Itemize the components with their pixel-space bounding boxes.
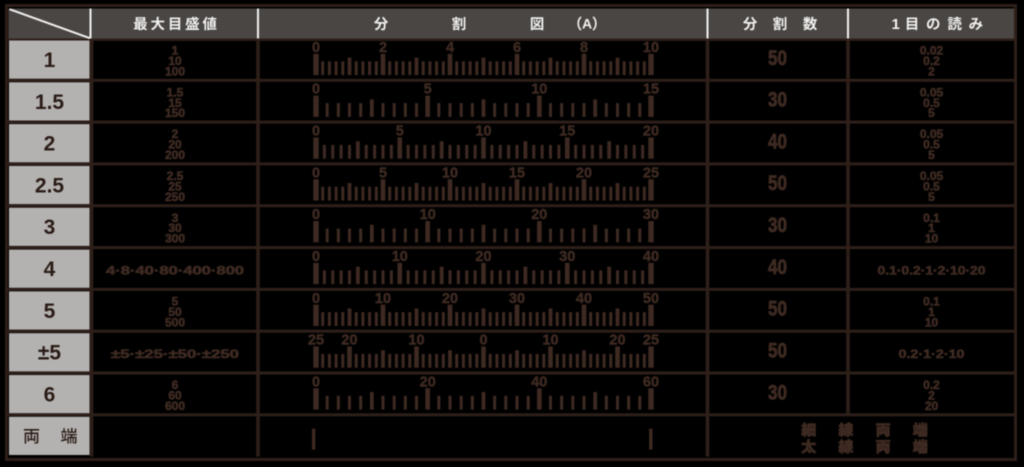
svg-text:20: 20: [341, 333, 357, 349]
svg-text:0.2·1·2·10: 0.2·1·2·10: [899, 347, 965, 361]
svg-text:1.5: 1.5: [35, 91, 65, 114]
svg-text:5: 5: [928, 106, 935, 120]
svg-text:10: 10: [392, 249, 408, 265]
svg-text:40: 40: [531, 374, 547, 390]
svg-text:0: 0: [312, 374, 320, 390]
svg-text:10: 10: [643, 40, 659, 56]
svg-text:30: 30: [768, 381, 787, 404]
svg-text:20: 20: [475, 249, 491, 265]
svg-text:50: 50: [768, 47, 787, 70]
svg-text:20: 20: [442, 291, 458, 307]
svg-text:±5: ±5: [38, 342, 62, 365]
svg-text:10: 10: [442, 165, 458, 181]
svg-text:150: 150: [165, 106, 185, 120]
svg-text:100: 100: [165, 64, 185, 78]
svg-text:0: 0: [312, 291, 320, 307]
svg-text:250: 250: [165, 190, 185, 204]
svg-text:20: 20: [643, 124, 659, 140]
svg-text:30: 30: [509, 291, 525, 307]
svg-text:2.5: 2.5: [35, 174, 65, 197]
svg-text:30: 30: [643, 207, 659, 223]
svg-text:0: 0: [312, 124, 320, 140]
svg-text:4: 4: [446, 40, 454, 56]
svg-text:4·8·40·80·400·800: 4·8·40·80·400·800: [106, 263, 244, 277]
svg-text:2: 2: [379, 40, 387, 56]
svg-text:10: 10: [420, 207, 436, 223]
svg-text:10: 10: [925, 315, 939, 329]
svg-text:15: 15: [509, 165, 525, 181]
svg-text:0.1·0.2·1·2·10·20: 0.1·0.2·1·2·10·20: [878, 263, 986, 277]
svg-text:0: 0: [312, 40, 320, 56]
svg-text:40: 40: [576, 291, 592, 307]
svg-text:15: 15: [643, 82, 659, 98]
svg-text:5: 5: [928, 190, 935, 204]
svg-text:5: 5: [379, 165, 387, 181]
svg-text:20: 20: [420, 374, 436, 390]
svg-text:40: 40: [643, 249, 659, 265]
svg-text:50: 50: [643, 291, 659, 307]
svg-text:10: 10: [375, 291, 391, 307]
svg-text:5: 5: [396, 124, 404, 140]
svg-text:500: 500: [165, 315, 185, 329]
svg-text:2: 2: [44, 133, 56, 156]
svg-text:6: 6: [513, 40, 521, 56]
svg-text:0: 0: [479, 333, 487, 349]
svg-text:30: 30: [559, 249, 575, 265]
svg-text:10: 10: [408, 333, 424, 349]
svg-text:20: 20: [609, 333, 625, 349]
svg-text:10: 10: [531, 82, 547, 98]
svg-text:5: 5: [928, 148, 935, 162]
svg-text:60: 60: [643, 374, 659, 390]
svg-text:3: 3: [44, 216, 56, 239]
svg-text:0: 0: [312, 207, 320, 223]
svg-text:25: 25: [643, 165, 659, 181]
svg-text:30: 30: [768, 214, 787, 237]
svg-text:5: 5: [44, 300, 56, 323]
svg-text:8: 8: [580, 40, 588, 56]
svg-text:30: 30: [768, 89, 787, 112]
svg-text:4: 4: [44, 258, 56, 281]
svg-text:10: 10: [542, 333, 558, 349]
svg-text:50: 50: [768, 172, 787, 195]
svg-text:1: 1: [44, 49, 56, 72]
svg-text:10: 10: [475, 124, 491, 140]
svg-text:5: 5: [424, 82, 432, 98]
svg-text:20: 20: [531, 207, 547, 223]
svg-text:0: 0: [312, 249, 320, 265]
svg-text:600: 600: [165, 399, 185, 413]
svg-text:25: 25: [643, 333, 659, 349]
svg-text:20: 20: [925, 399, 939, 413]
svg-text:300: 300: [165, 232, 185, 246]
svg-text:20: 20: [576, 165, 592, 181]
svg-text:1: 1: [892, 16, 900, 33]
svg-text:15: 15: [559, 124, 575, 140]
svg-text:6: 6: [44, 384, 56, 407]
svg-text:25: 25: [308, 333, 324, 349]
svg-text:10: 10: [925, 232, 939, 246]
svg-text:A: A: [582, 16, 592, 32]
svg-text:0: 0: [312, 82, 320, 98]
svg-text:40: 40: [768, 130, 787, 153]
svg-text:0: 0: [312, 165, 320, 181]
svg-text:40: 40: [768, 256, 787, 279]
svg-text:±5·±25·±50·±250: ±5·±25·±50·±250: [111, 347, 239, 361]
svg-text:50: 50: [768, 298, 787, 321]
svg-text:50: 50: [768, 340, 787, 363]
svg-text:200: 200: [165, 148, 185, 162]
svg-text:2: 2: [928, 64, 935, 78]
